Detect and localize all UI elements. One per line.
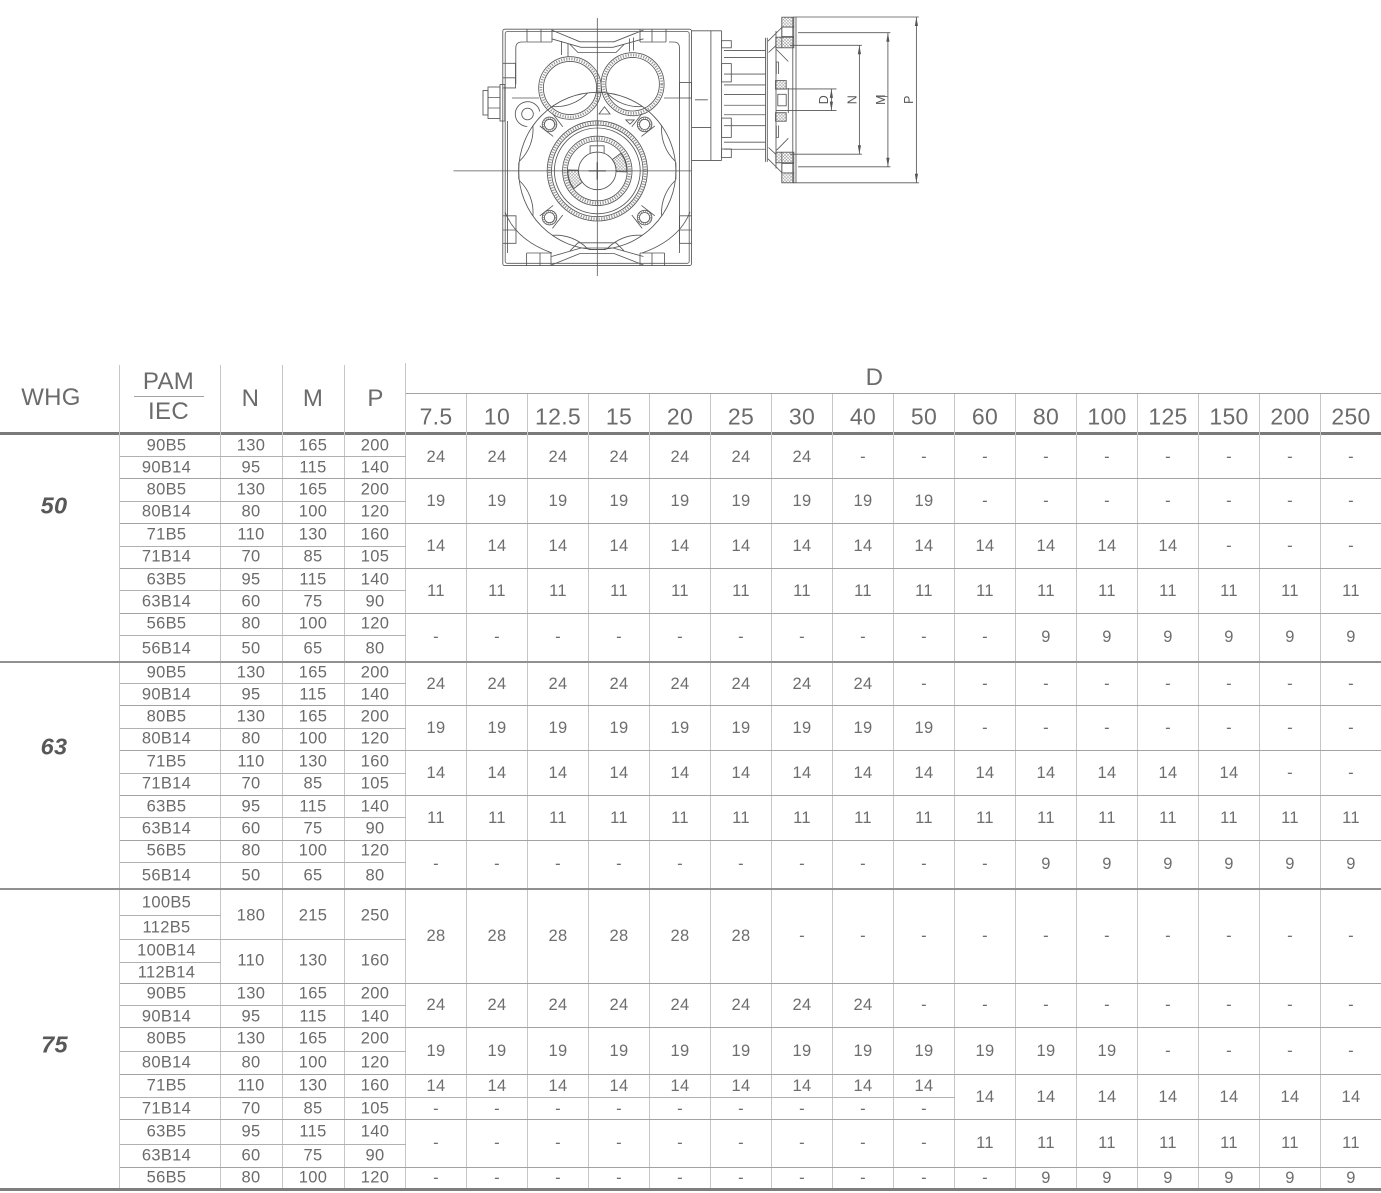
svg-text:P: P: [902, 96, 916, 104]
svg-text:D: D: [817, 95, 831, 104]
svg-text:N: N: [845, 95, 859, 104]
svg-text:M: M: [874, 94, 888, 104]
